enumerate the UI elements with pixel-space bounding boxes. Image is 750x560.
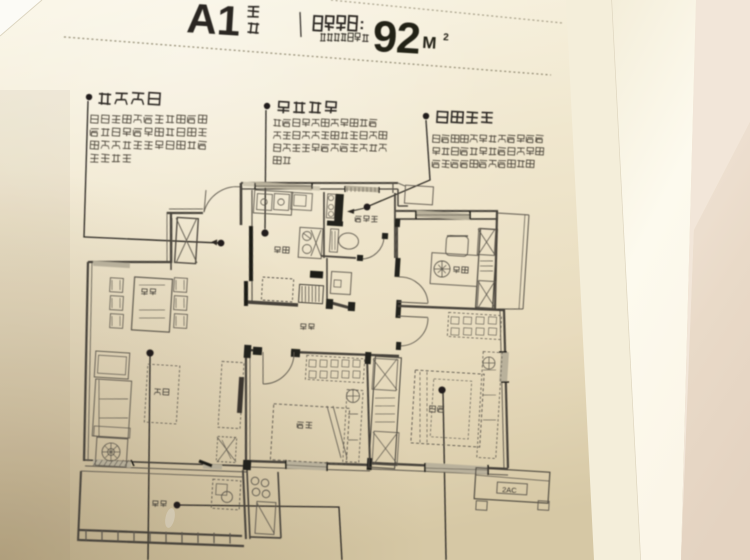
svg-text:A1: A1: [185, 0, 241, 45]
svg-text:92: 92: [371, 12, 421, 64]
svg-text:2AC: 2AC: [502, 485, 518, 495]
svg-text:2: 2: [443, 32, 450, 43]
svg-text::: :: [359, 16, 365, 33]
svg-text:M: M: [422, 33, 437, 53]
